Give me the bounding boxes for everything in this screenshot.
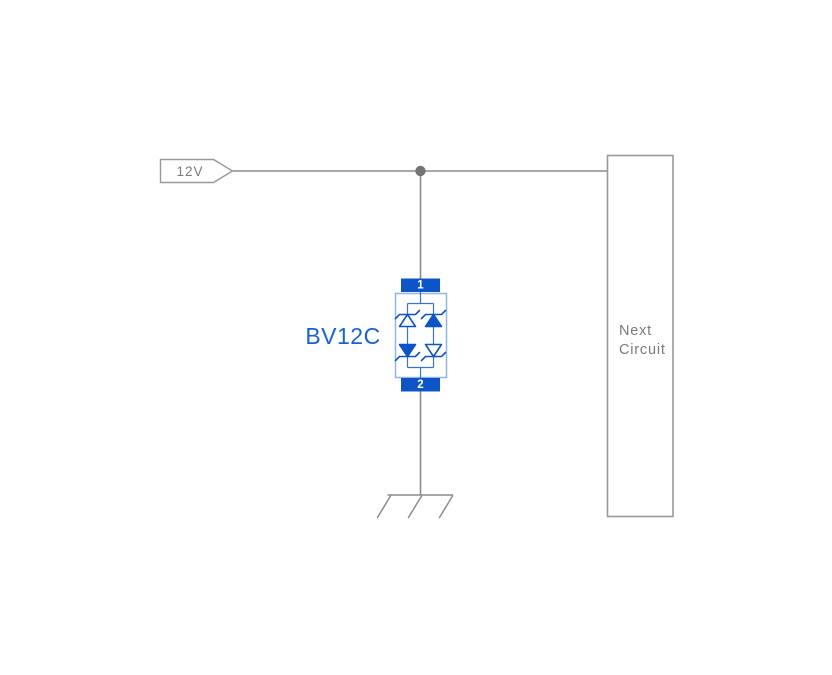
ground-hatch-right (440, 496, 453, 518)
tvs-diode-component: 1 2 (396, 279, 447, 392)
pin1-label: 1 (417, 280, 424, 292)
schematic-canvas: 12V Next Circuit 1 (0, 0, 832, 675)
next-circuit-block: Next Circuit (608, 156, 674, 517)
pin2-label: 2 (417, 379, 423, 391)
next-circuit-text-line2: Circuit (619, 342, 666, 358)
ground-icon (378, 495, 453, 518)
junction-dot-icon (415, 166, 425, 176)
net-label-12v: 12V (161, 160, 233, 183)
ground-hatch-left (378, 496, 391, 518)
component-body (396, 294, 447, 378)
component-designator: BV12C (305, 323, 380, 349)
next-circuit-text-line1: Next (619, 323, 652, 339)
ground-hatch-middle (409, 496, 422, 518)
net-label-12v-text: 12V (176, 164, 203, 179)
